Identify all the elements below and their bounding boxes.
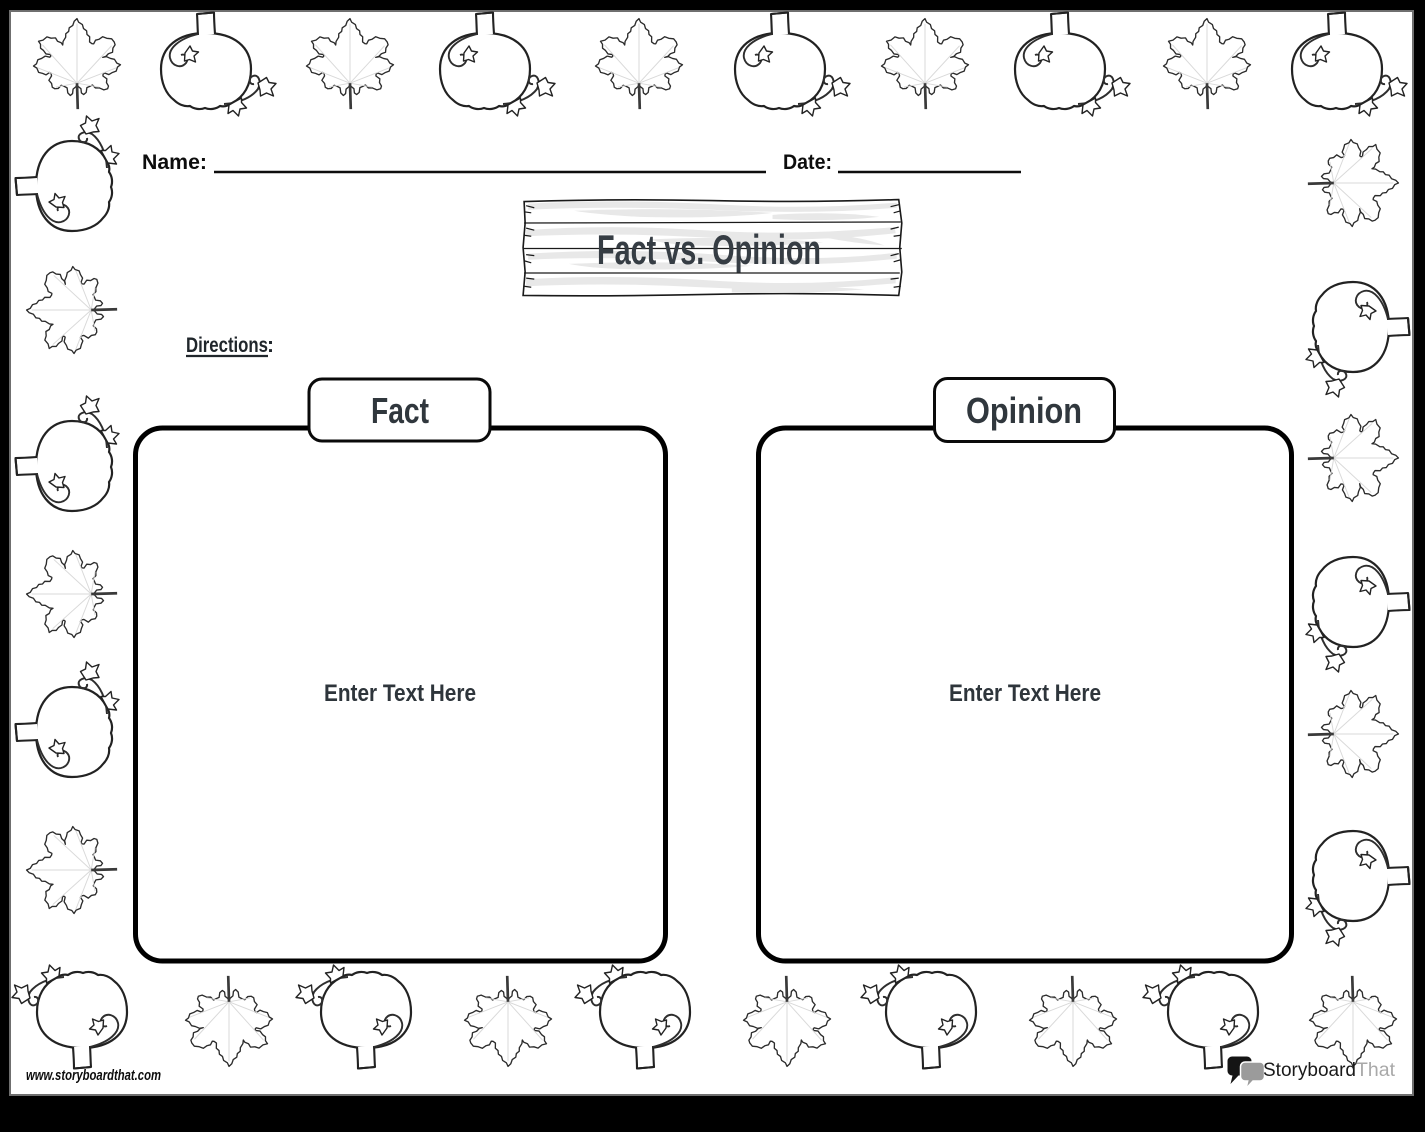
svg-text:Directions: Directions — [186, 334, 268, 357]
svg-text:Storyboard: Storyboard — [1263, 1059, 1356, 1081]
svg-text:That: That — [1356, 1059, 1396, 1081]
svg-text:Fact: Fact — [371, 390, 429, 431]
svg-text:Fact vs. Opinion: Fact vs. Opinion — [597, 226, 821, 273]
svg-text::: : — [267, 334, 274, 357]
svg-text:www.storyboardthat.com: www.storyboardthat.com — [26, 1067, 161, 1084]
svg-text:Date:: Date: — [783, 150, 832, 174]
svg-text:Opinion: Opinion — [966, 390, 1082, 431]
svg-text:Enter Text Here: Enter Text Here — [324, 680, 476, 707]
svg-text:Enter Text Here: Enter Text Here — [949, 680, 1101, 707]
svg-text:Name:: Name: — [142, 150, 207, 174]
